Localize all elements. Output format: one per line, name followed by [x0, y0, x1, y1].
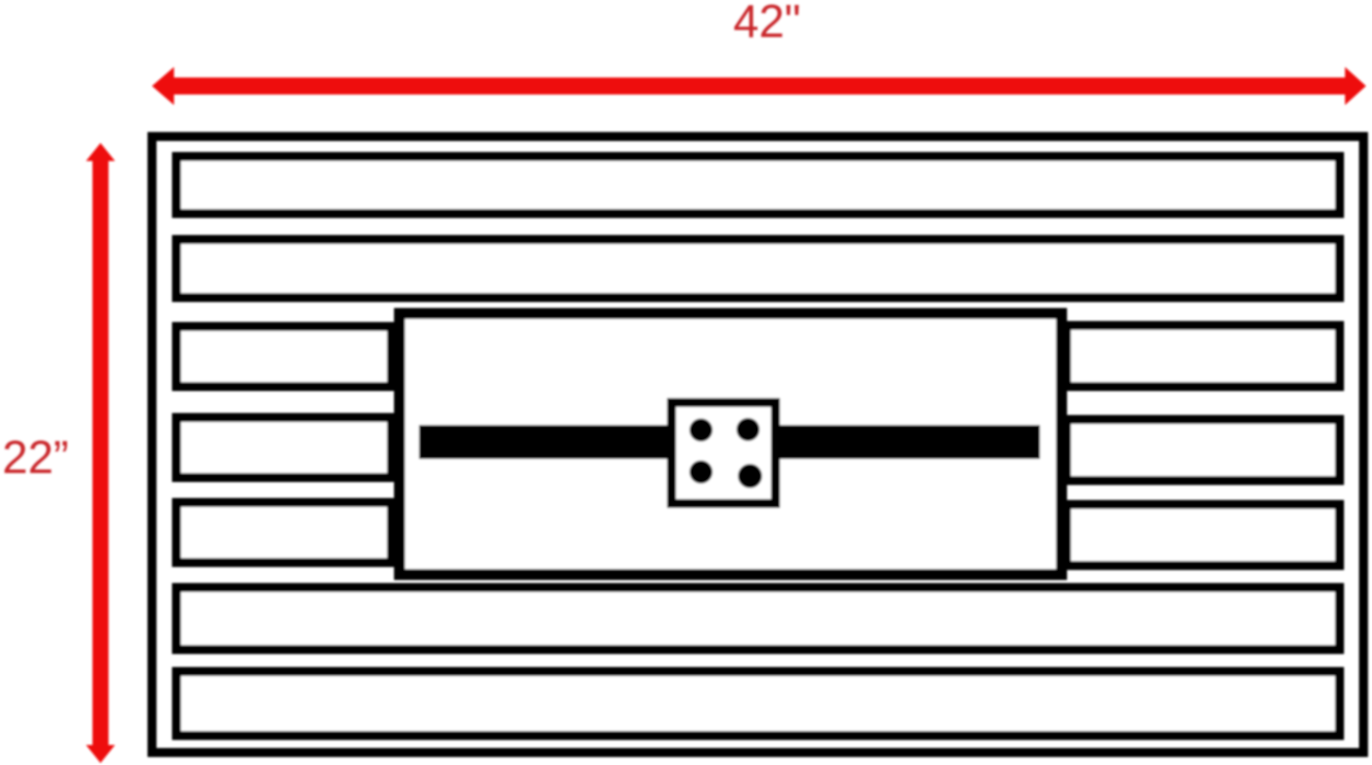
- svg-text:22”: 22”: [2, 431, 68, 483]
- svg-text:42": 42": [733, 0, 801, 47]
